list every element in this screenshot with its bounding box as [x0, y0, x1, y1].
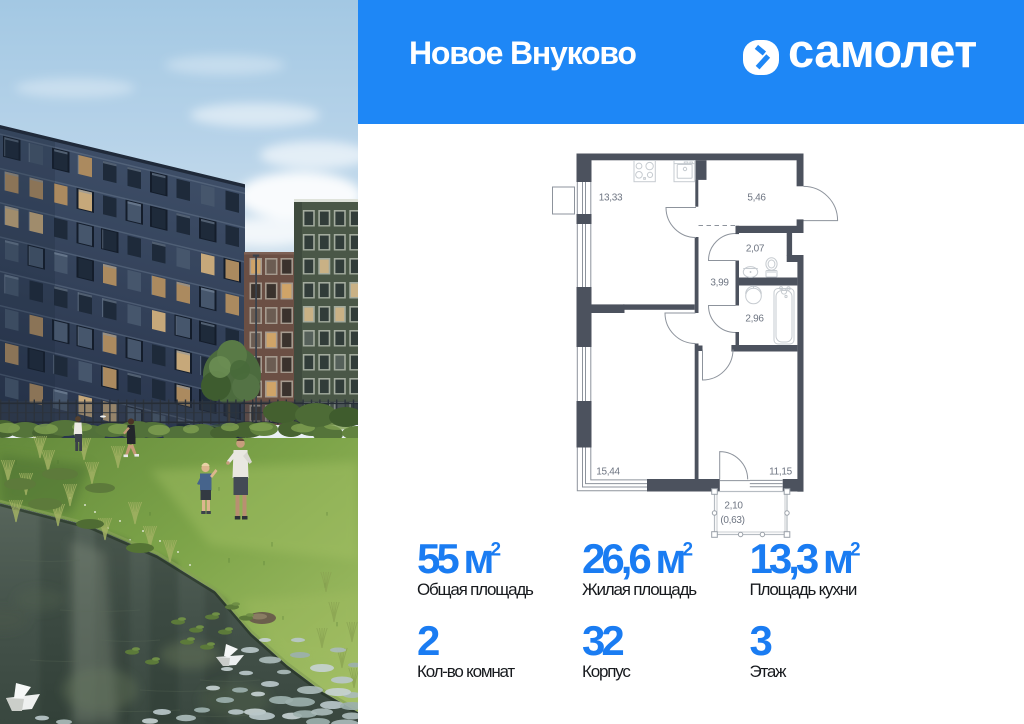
svg-text:(0,63): (0,63) [720, 515, 744, 526]
svg-text:15,44: 15,44 [596, 467, 620, 478]
svg-text:11,15: 11,15 [769, 467, 793, 478]
svg-text:2,96: 2,96 [745, 314, 764, 325]
svg-text:3,99: 3,99 [710, 278, 729, 289]
svg-text:2,10: 2,10 [724, 501, 743, 512]
svg-text:2,07: 2,07 [746, 244, 765, 255]
svg-text:5,46: 5,46 [747, 193, 766, 204]
svg-text:13,33: 13,33 [599, 193, 623, 204]
